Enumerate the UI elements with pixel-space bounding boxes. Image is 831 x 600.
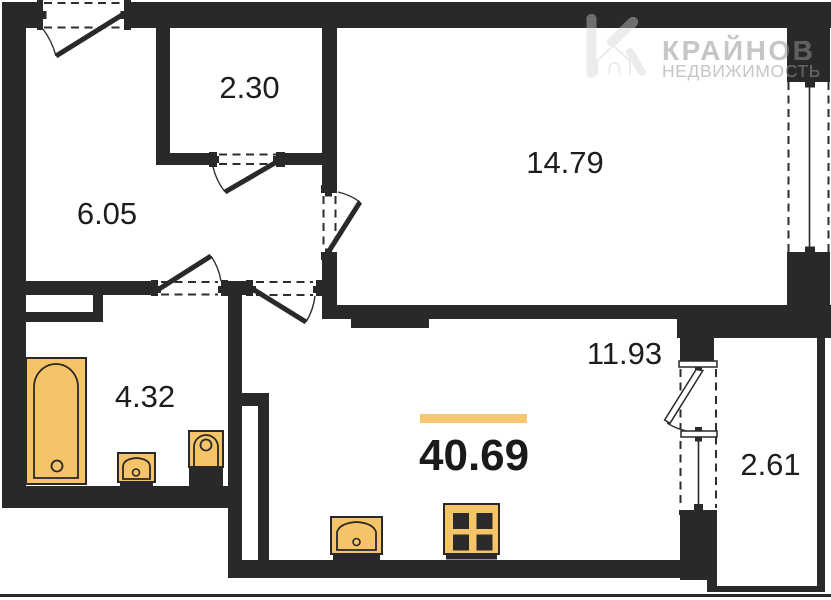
svg-text:14.79: 14.79 — [526, 145, 604, 180]
svg-text:11.93: 11.93 — [587, 336, 662, 371]
svg-text:2.61: 2.61 — [740, 447, 800, 482]
svg-text:4.32: 4.32 — [115, 379, 175, 414]
svg-text:2.30: 2.30 — [219, 70, 279, 105]
svg-text:6.05: 6.05 — [77, 196, 137, 231]
svg-text:40.69: 40.69 — [419, 431, 529, 480]
